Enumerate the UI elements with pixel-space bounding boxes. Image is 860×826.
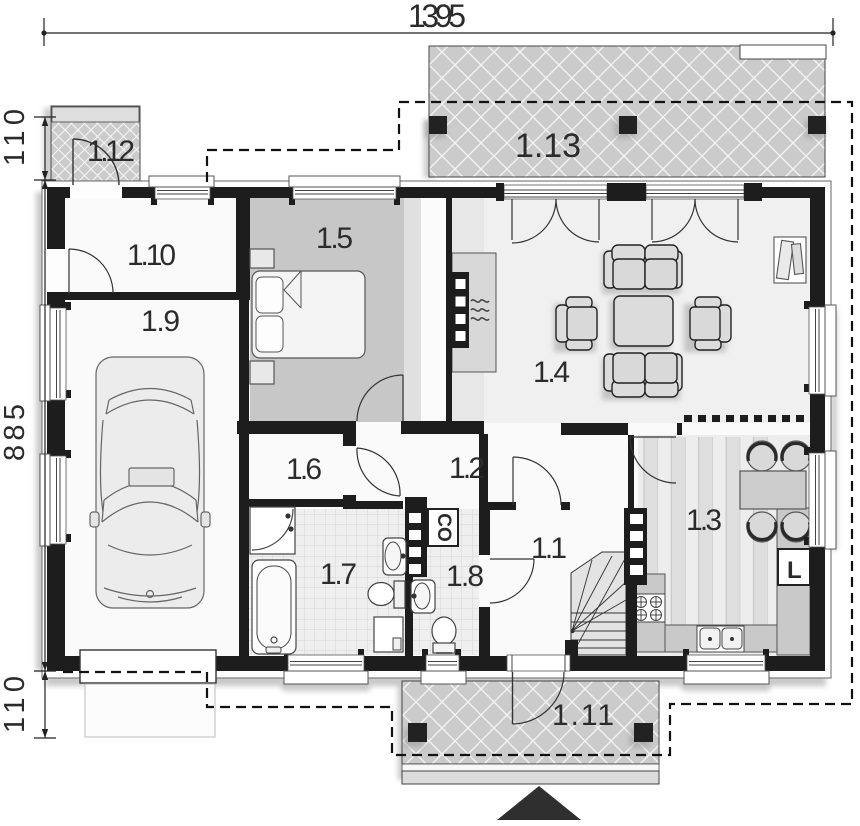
svg-text:110: 110 bbox=[0, 676, 31, 733]
svg-text:1.5: 1.5 bbox=[316, 222, 353, 255]
svg-text:1.2: 1.2 bbox=[449, 452, 485, 485]
svg-text:1.9: 1.9 bbox=[141, 305, 180, 338]
svg-text:110: 110 bbox=[0, 109, 31, 166]
svg-text:1395: 1395 bbox=[408, 0, 466, 34]
svg-text:1.3: 1.3 bbox=[686, 504, 722, 537]
svg-text:1.12: 1.12 bbox=[87, 135, 135, 168]
svg-text:L: L bbox=[787, 557, 802, 584]
svg-text:1.8: 1.8 bbox=[446, 560, 484, 593]
svg-text:CO: CO bbox=[433, 513, 454, 542]
svg-text:1.13: 1.13 bbox=[515, 127, 581, 165]
svg-text:1.4: 1.4 bbox=[533, 356, 570, 389]
svg-text:1.7: 1.7 bbox=[320, 558, 357, 591]
svg-text:1.10: 1.10 bbox=[127, 239, 176, 272]
svg-text:1.6: 1.6 bbox=[286, 453, 322, 486]
svg-text:885: 885 bbox=[0, 404, 31, 461]
svg-text:1.1: 1.1 bbox=[531, 532, 567, 565]
svg-text:1.11: 1.11 bbox=[552, 699, 614, 732]
